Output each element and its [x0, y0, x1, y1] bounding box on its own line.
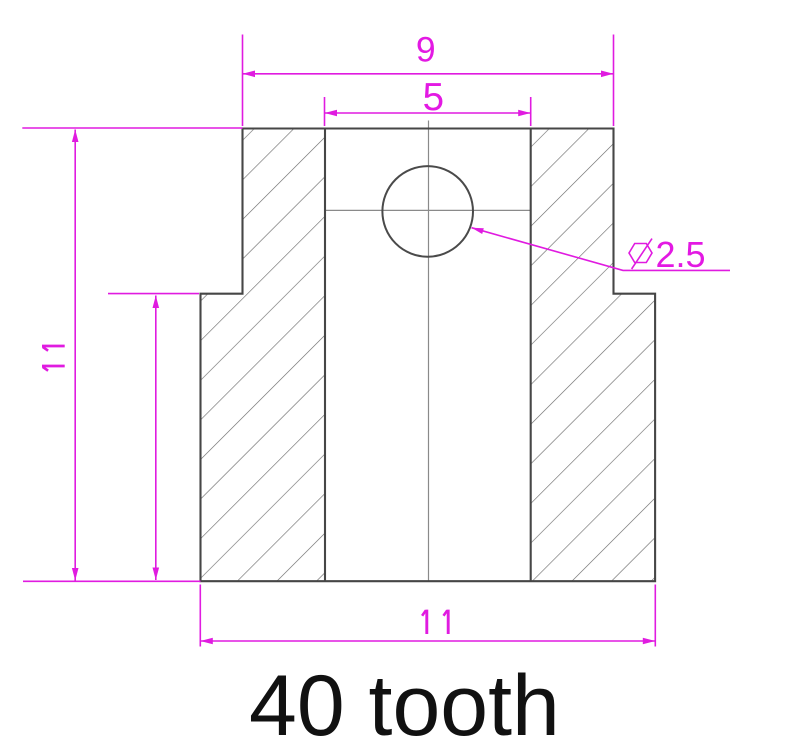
svg-text:40 tooth: 40 tooth [249, 658, 560, 754]
svg-text:9: 9 [416, 30, 436, 70]
svg-text:2.5: 2.5 [656, 234, 706, 275]
svg-text:5: 5 [423, 76, 444, 119]
